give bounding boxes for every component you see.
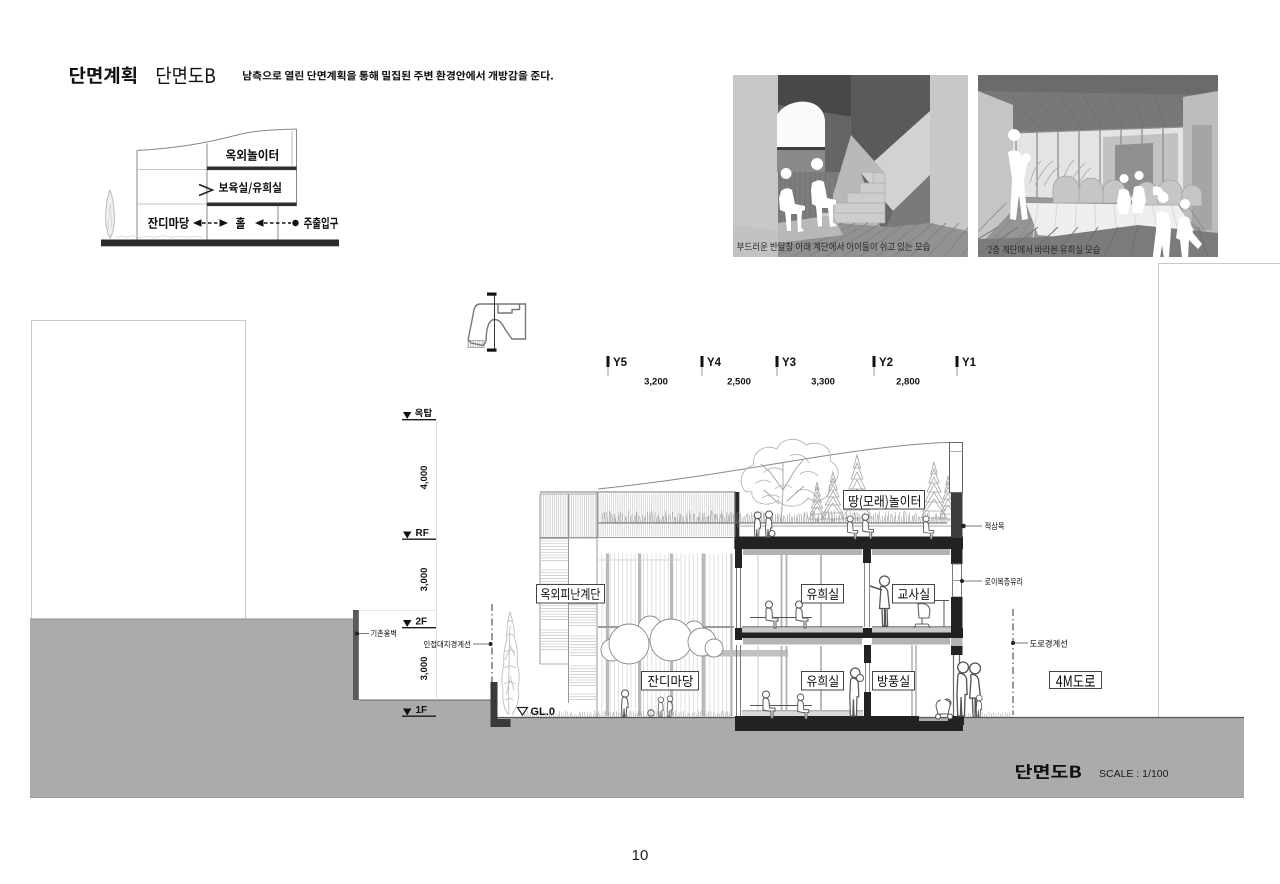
svg-text:4,000: 4,000 bbox=[419, 466, 430, 490]
svg-text:2,800: 2,800 bbox=[896, 377, 920, 388]
svg-text:1F: 1F bbox=[416, 705, 428, 716]
svg-text:Y5: Y5 bbox=[613, 357, 628, 369]
svg-text:3,000: 3,000 bbox=[419, 568, 430, 592]
svg-text:3,200: 3,200 bbox=[644, 377, 668, 388]
svg-text:Y3: Y3 bbox=[782, 357, 796, 369]
svg-text:3,300: 3,300 bbox=[811, 377, 835, 388]
svg-text:RF: RF bbox=[416, 528, 429, 539]
svg-text:2,500: 2,500 bbox=[727, 377, 751, 388]
svg-text:Y2: Y2 bbox=[879, 357, 893, 369]
svg-text:2F: 2F bbox=[416, 617, 428, 628]
svg-text:10: 10 bbox=[632, 847, 649, 864]
svg-text:3,000: 3,000 bbox=[419, 657, 430, 681]
svg-text:Y1: Y1 bbox=[962, 357, 977, 369]
svg-text:Y4: Y4 bbox=[707, 357, 722, 369]
svg-text:SCALE : 1/100: SCALE : 1/100 bbox=[1099, 768, 1169, 780]
svg-text:GL.0: GL.0 bbox=[531, 706, 555, 718]
